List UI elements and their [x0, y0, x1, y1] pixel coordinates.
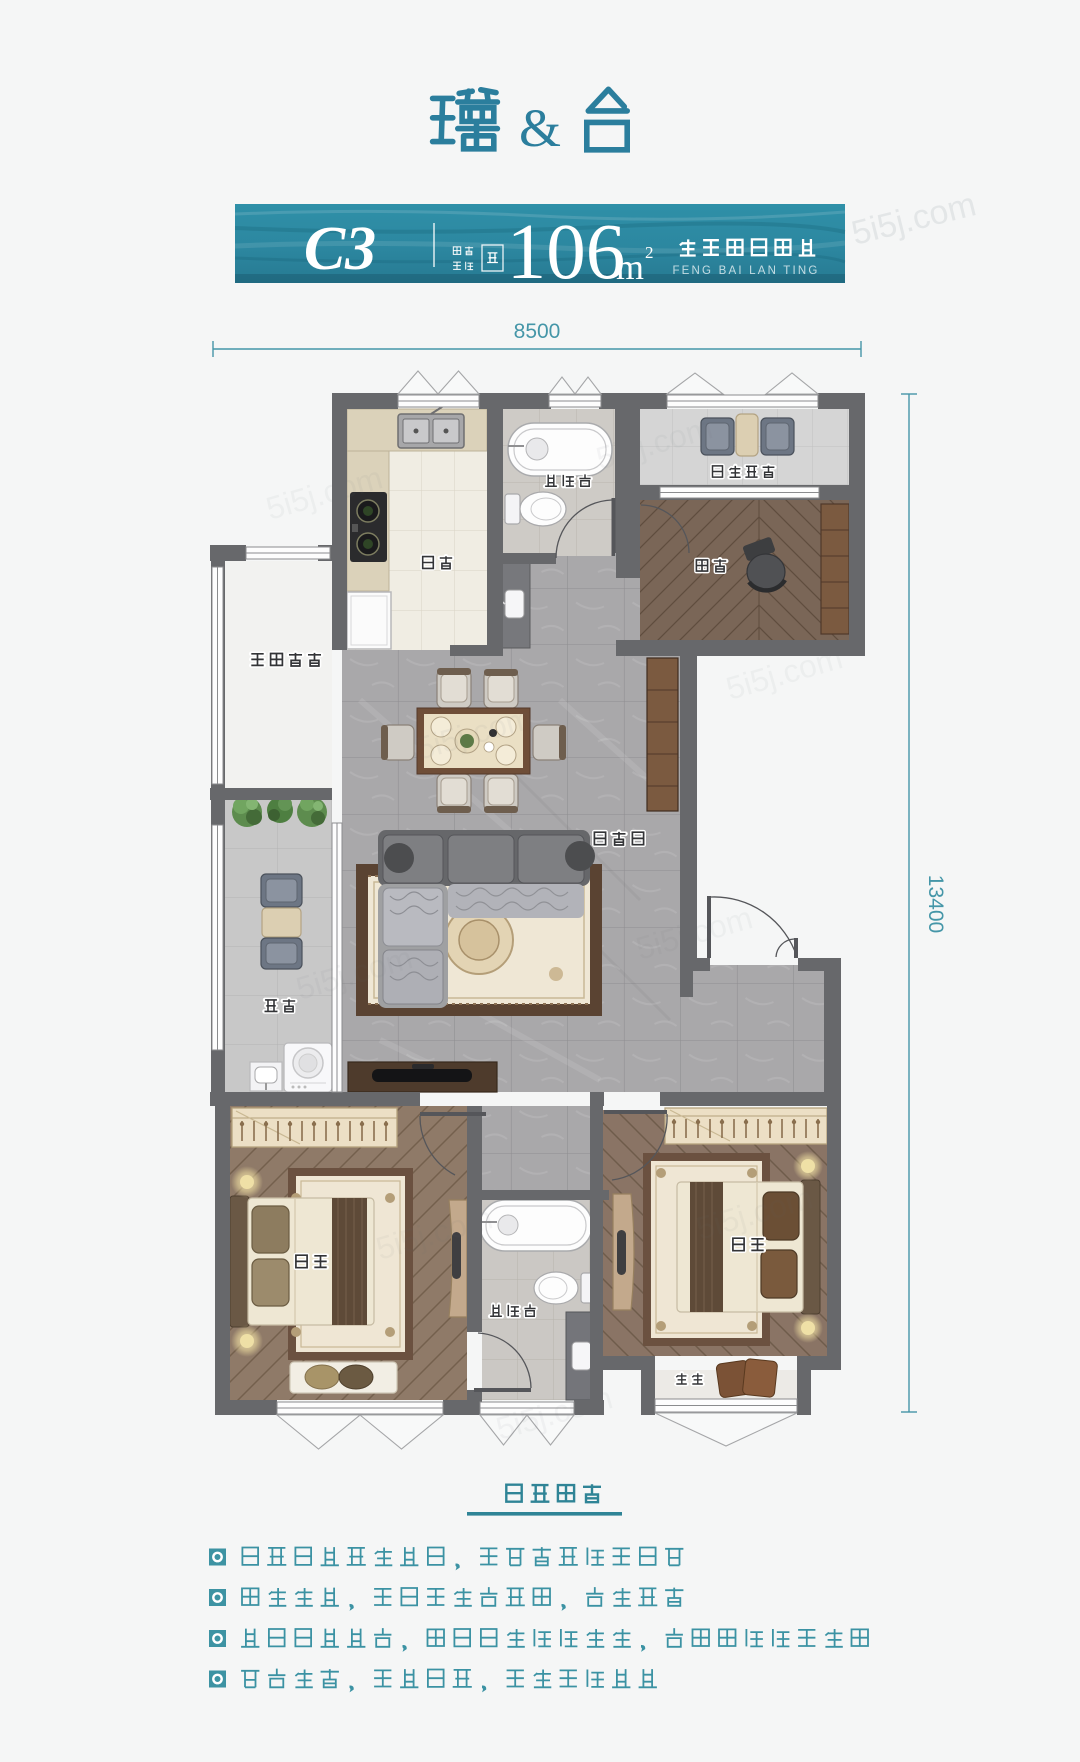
svg-text:FENG BAI LAN TING: FENG BAI LAN TING	[672, 265, 819, 277]
svg-text:C3: C3	[304, 215, 376, 283]
svg-text:8500: 8500	[514, 320, 561, 343]
svg-text:&: &	[519, 98, 561, 158]
svg-text:m: m	[616, 247, 644, 287]
svg-text:2: 2	[645, 243, 654, 262]
svg-text:13400: 13400	[924, 875, 947, 933]
svg-text:106: 106	[507, 209, 626, 296]
